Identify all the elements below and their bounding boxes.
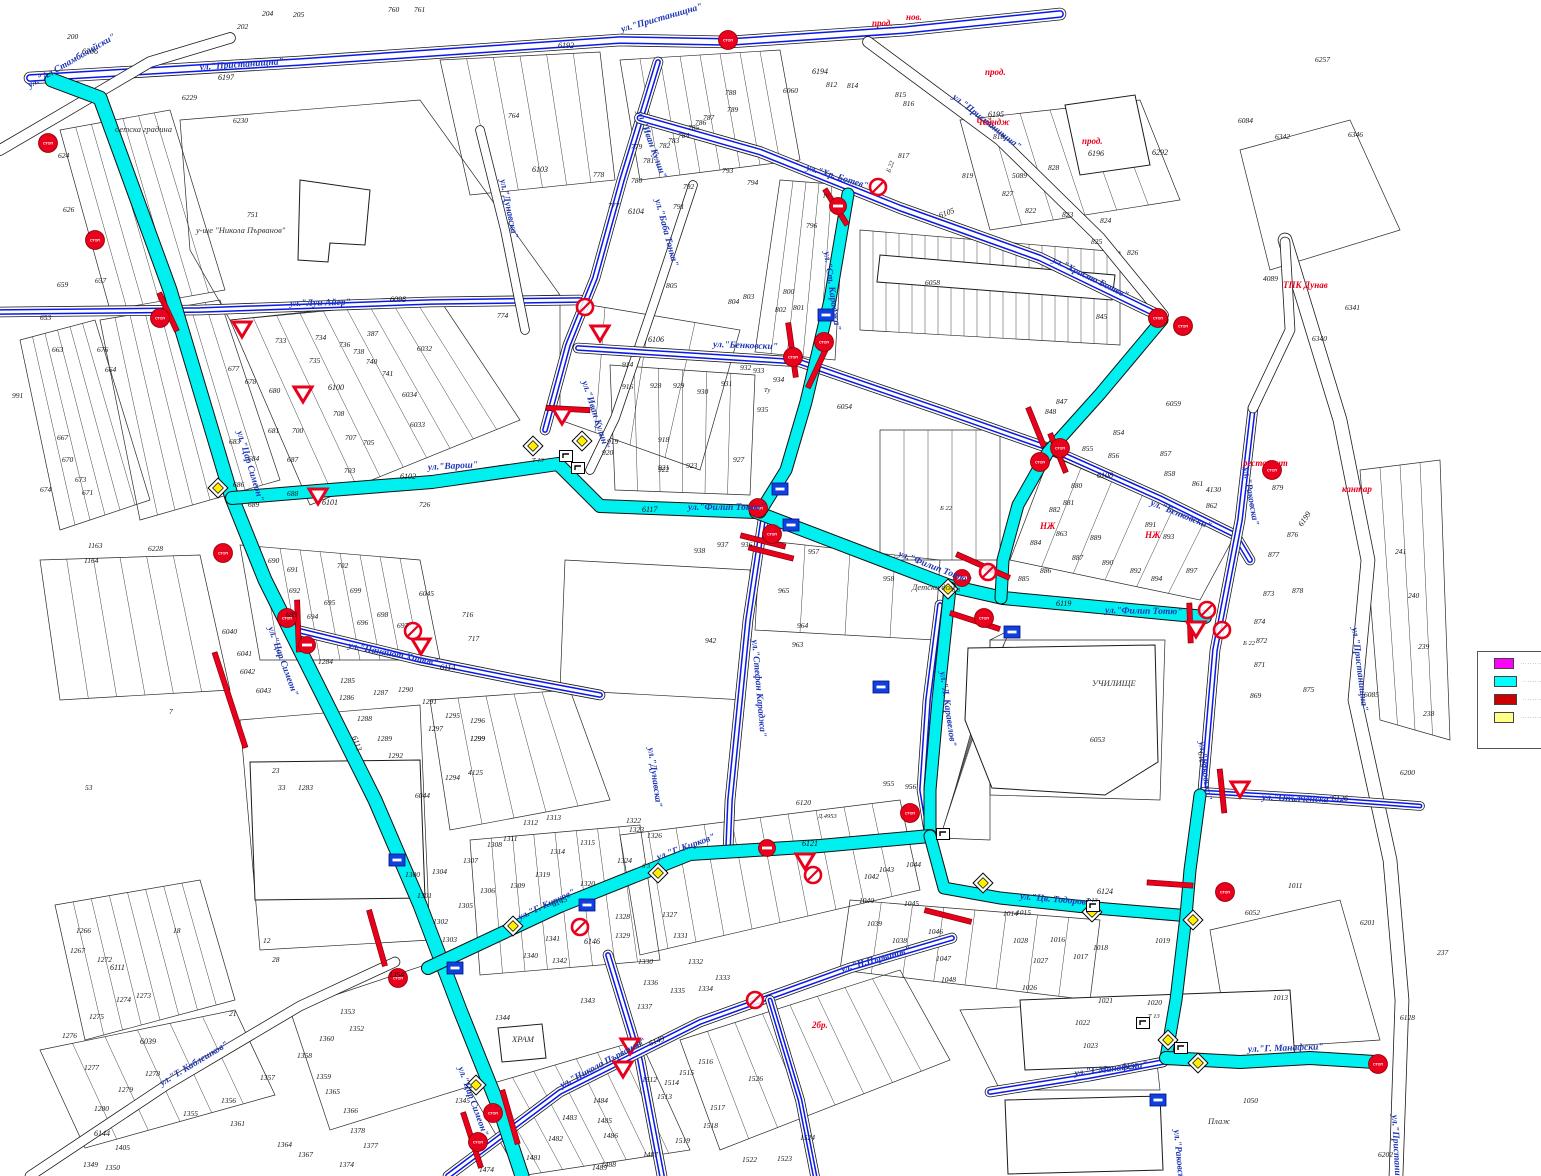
parcel-lot-line [732,821,752,929]
sign-code-label: б 3 [642,863,651,870]
parcel-number: 1377 [363,1141,378,1150]
yield-sign-marker [553,409,571,424]
parcel-number: 1163 [88,541,103,550]
legend-item-red-route: ........ [1494,692,1541,706]
parcel-number: 1026 [1022,983,1037,992]
parcel-number: 1374 [339,1160,354,1169]
parcel-number: 1523 [777,1154,792,1163]
parcel-number: 1350 [105,1163,120,1172]
parcel-number: 871 [1254,660,1265,669]
parcel-lot-line [253,318,333,496]
parcel-number: 751 [247,210,258,219]
parcel-number: 6060 [783,86,798,95]
parcel-number: 828 [1048,163,1060,172]
parcel-number: 1299 [470,734,485,743]
parcel-number: 936 [741,540,753,549]
street-code: 6196 [1088,149,1104,158]
parcel-number: 1297 [428,724,443,733]
parcel-number: 205 [293,10,305,19]
parcel-number: 700 [292,426,304,435]
svg-text:СТОП: СТОП [1220,890,1230,894]
parcel-number: 1513 [657,1092,672,1101]
street-code: 6124 [1097,887,1113,896]
parcel-number: 1302 [433,917,448,926]
sign-code-label: Б 22 [1242,640,1256,647]
parcel-number: 1481 [526,1153,541,1162]
parcel-number: 676 [97,345,109,354]
svg-text:СТОП: СТОП [1178,324,1188,328]
parcel-number: 12 [263,936,271,945]
annotation-red-label: НЖ [1144,530,1161,540]
svg-text:СТОП: СТОП [788,355,798,359]
parcel-number: 1013 [1273,993,1288,1002]
parcel-number: 1320 [580,879,595,888]
no-entry-open-marker [805,867,821,883]
stop-sign-marker: СТОП [1216,883,1235,902]
parcel-number: 1027 [1033,956,1048,965]
priority-road-sign [523,436,543,456]
parcel-number: 845 [1096,312,1108,321]
parcel-number: 1048 [941,975,956,984]
info-sign-blue [579,899,595,911]
parcel-number: 1342 [552,956,567,965]
street-code: 6111 [110,963,125,972]
parcel-number: 1273 [136,991,151,1000]
street-code: 6292 [1152,148,1168,157]
annotation-red-label: прод. [872,18,893,28]
parcel-number: 927 [733,455,745,464]
parcel-lot-line [619,827,638,962]
parcel-number: 18 [173,926,181,935]
parcel-lot-line [115,318,158,516]
stop-sign-marker: СТОП [39,134,58,153]
parcel-number: 6342 [1275,132,1290,141]
parcel-number: 955 [883,779,895,788]
parcel-number: 6059 [1166,399,1181,408]
sign-code-label: Д.4953 [817,813,838,820]
parcel-number: 4130 [1206,485,1221,494]
parcel-number: 6257 [1315,55,1330,64]
parcel-number: 1267 [70,946,85,955]
street-code: 6101 [322,498,338,507]
route-st-karadzha [760,194,848,512]
parcel-number: 6045 [419,589,434,598]
parcel-number: 204 [262,9,274,18]
parcel-number: 857 [1160,449,1172,458]
legend-label: ......... [1520,660,1541,666]
svg-text:СТОП: СТОП [1267,468,1277,472]
parcel-number: 1349 [83,1160,98,1169]
no-entry-sign-marker [759,840,776,857]
parcel-number: 780 [631,176,643,185]
parcel-number: 788 [725,88,737,97]
parcel-number: 1319 [535,870,550,879]
parcel-number: 863 [1056,529,1068,538]
parcel-lot-line [173,556,201,692]
street-code: 6114 [440,663,455,672]
parcel-number: 1283 [298,783,313,792]
parcel-number: 1352 [349,1024,364,1033]
parcel-number: 699 [350,586,362,595]
parcel-number: 1324 [617,856,632,865]
parcel-lot-line [845,550,850,635]
parcel-number: 738 [353,347,365,356]
parcel-number: 693 [286,610,298,619]
parcel-number: 991 [12,391,23,400]
parcel-number: 1327 [662,910,677,919]
arena-hall [250,760,425,900]
parcel-number: 6054 [837,402,852,411]
parcel-block [440,52,615,195]
parcel-number: 1357 [260,1073,275,1082]
street-code: 6117 [642,505,658,514]
parcel-lot-line [760,818,780,923]
parcel-number: 894 [1151,574,1163,583]
parcel-number: 1365 [325,1087,340,1096]
info-sign-blue [447,962,463,974]
legend-label: ......... [1520,714,1541,720]
parcel-block [40,555,230,700]
parcel-lot-line [493,57,518,190]
parcel-number: 687 [287,455,299,464]
parcel-number: 825 [1091,237,1103,246]
uchilishte-school [965,645,1158,795]
parcel-number: 764 [508,111,520,120]
parcel-number: 1306 [480,886,495,895]
parcel-number: 1334 [698,984,713,993]
parcel-number: 6042 [240,667,255,676]
parcel-number: 33 [277,783,286,792]
street-code: 6199 [1296,510,1313,528]
parcel-number: 1309 [510,881,525,890]
parcel-number: 937 [717,540,729,549]
parcel-lot-line [816,811,836,910]
parcel-block [560,560,750,700]
parcel-number: 887 [1072,553,1084,562]
parcel-number: 735 [309,356,321,365]
parcel-number: 879 [1272,483,1284,492]
parcel-number: 1301 [417,891,432,900]
parcel-lot-line [514,694,546,812]
parcel-number: 6340 [1312,334,1327,343]
legend-swatch-yellow-route [1494,712,1514,723]
parcel-number: 6230 [233,116,248,125]
parcel-lot-line [728,373,731,494]
svg-text:СТОП: СТОП [819,340,829,344]
parcel-number: 1289 [377,734,392,743]
parcel-number: 1305 [458,901,473,910]
no-entry-open-marker [1214,622,1230,638]
svg-text:СТОП: СТОП [218,551,228,555]
parcel-number: 670 [62,455,74,464]
parcel-number: 930 [697,387,709,396]
stop-sign-marker: СТОП [901,804,920,823]
parcel-number: 1484 [593,1096,608,1105]
parcel-number: 880 [1071,481,1083,490]
street-code: 6039 [140,1037,156,1046]
parcel-number: 858 [1164,469,1176,478]
annotation-red-label: 2бр. [811,1020,828,1030]
parcel-lot-line [83,323,136,505]
parcel-number: 6040 [222,627,237,636]
parcel-number: 1280 [94,1104,109,1113]
yield-sign-marker [591,326,609,341]
parcel-lot-line [844,807,864,903]
parcel-number: 923 [686,461,698,470]
parcel-number: 891 [1145,520,1156,529]
parcel-number: 1050 [1243,1096,1258,1105]
parcel-number: 816 [903,99,915,108]
parcel-lot-line [547,55,567,185]
sign-code-label: Т 13 [532,457,544,464]
parcel-number: 855 [1082,444,1094,453]
street-name-label: ул."Филип Тотю" [687,503,765,513]
street-code: 6144 [94,1129,110,1138]
info-sign-blue [1004,626,1020,638]
parcel-number: 875 [1303,685,1315,694]
parcel-number: 1294 [445,773,460,782]
parcel-number: 667 [57,433,69,442]
parcel-number: 787 [703,113,715,122]
parcel-number: 6229 [182,93,197,102]
parcel-number: 874 [1254,617,1266,626]
parcel-number: 1022 [1075,1018,1090,1027]
parcel-number: 1524 [800,1133,815,1142]
parcel-number: 686 [233,480,245,489]
parcel-number: 1489 [592,1163,607,1172]
parcel-number: 1276 [62,1031,77,1040]
parcel-number: 889 [1090,533,1102,542]
street-code: 6100 [328,383,344,392]
street-code: 6106 [648,335,664,344]
parcel-number: 238 [1423,709,1435,718]
parcel-number: 942 [705,636,717,645]
parcel-number: 653 [40,313,52,322]
parcel-number: 824 [1100,216,1112,225]
parcel-number: 1019 [1155,936,1170,945]
barrier-bar-marker [367,909,388,966]
street-code: 6146 [584,937,600,946]
svg-text:СТОП: СТОП [488,1111,498,1115]
parcel-number: 1356 [221,1096,236,1105]
stop-sign-marker: СТОП [784,348,803,367]
parcel-number: 1518 [703,1121,718,1130]
parcel-number: 6228 [148,544,163,553]
parcel-number: 789 [727,105,739,114]
street-code: 6105 [938,206,956,220]
street-name-label: ул."Бенковски" [712,340,778,352]
parcel-number: 6032 [417,344,432,353]
svg-text:СТОП: СТОП [473,1140,483,1144]
parcel-number: 956 [905,782,917,791]
parcel-lot-line [380,557,400,660]
parcel-number: 791 [673,202,684,211]
parcel-number: 774 [497,311,509,320]
parcel-number: 6034 [402,390,417,399]
traffic-sign-box [560,451,573,462]
no-entry-open-marker [870,179,886,195]
map-canvas[interactable]: СТОПСТОПСТОПСТОПСТОПСТОПСТОПСТОПСТОПСТОП… [0,0,1541,1176]
parcel-lot-line [486,696,514,818]
parcel-number: 1526 [748,1074,763,1083]
sign-code-label: Б 22 [885,159,896,174]
parcel-number: 1042 [864,872,879,881]
parcel-number: 805 [666,281,678,290]
parcel-number: 933 [753,366,765,375]
parcel-number: 1047 [936,954,951,963]
parcel-number: 1043 [879,865,894,874]
parcel-number: 6084 [1238,116,1253,125]
parcel-number: 1335 [670,986,685,995]
parcel-lot-line [573,53,591,182]
parcel-number: 963 [792,640,804,649]
parcel-block [880,430,1000,560]
parcel-number: 1322 [626,816,641,825]
parcel-number: 1274 [116,995,131,1004]
parcel-number: 6128 [1400,1013,1415,1022]
parcel-number: 674 [40,485,52,494]
poi-label: Детски дом [911,582,956,592]
sign-code-label: Ту [764,387,770,394]
annotation-red-label: Чейндж [976,117,1010,127]
sign-code-label: IV [822,193,830,200]
parcel-number: 1360 [319,1034,334,1043]
parcel-number: 878 [1292,586,1304,595]
map-viewport: СТОПСТОПСТОПСТОПСТОПСТОПСТОПСТОПСТОПСТОП… [0,0,1541,1176]
parcel-number: 890 [1102,558,1114,567]
parcel-number: 1040 [859,896,874,905]
parcel-block [55,880,235,1040]
stop-sign-marker: СТОП [1149,309,1168,328]
parcel-number: 695 [324,598,336,607]
parcel-number: 778 [593,170,605,179]
parcel-number: 1516 [698,1057,713,1066]
parcel-number: 861 [1192,479,1203,488]
parcel-number: 1358 [297,1051,312,1060]
poi-label: УЧИЛИЩЕ [1092,678,1136,688]
parcel-number: 1290 [398,685,413,694]
parcel-number: 4089 [1263,274,1278,283]
parcel-number: 760 [388,5,400,14]
poi-label: детска градина [115,124,172,134]
parcel-number: 6058 [925,278,940,287]
parcel-number: 1046 [928,927,943,936]
parcel-number: 691 [287,565,298,574]
sign-code-label: Т 13 [1148,1013,1160,1020]
parcel-number: 681 [268,426,279,435]
parcel-number: 6041 [237,649,252,658]
parcel-lot-line [760,51,780,162]
parcel-number: 885 [1018,574,1030,583]
parcel-number: 935 [757,405,769,414]
parcel-number: 803 [743,292,755,301]
parcel-number: 717 [468,634,480,643]
parcel-number: 1286 [339,693,354,702]
parcel-number: 1021 [1098,996,1113,1005]
svg-text:СТОП: СТОП [43,141,53,145]
parcel-lot-line [1059,918,1069,997]
parcel-number: 1344 [495,1013,510,1022]
annotation-red-label: прод. [985,67,1006,77]
parcel-number: 240 [1408,591,1420,600]
parcel-number: 7 [169,707,173,716]
parcel-number: 741 [382,369,393,378]
street-name-label: ул."Дунавска" [645,746,663,808]
parcel-number: 690 [268,556,280,565]
parcel-number: 5089 [1012,171,1027,180]
stop-sign-marker: СТОП [484,1104,503,1123]
map-legend: .................................. [1477,651,1541,749]
info-sign-blue [783,519,799,531]
parcel-number: 819 [962,171,974,180]
parcel-number: 761 [414,5,425,14]
parcel-number: 387 [366,329,379,338]
parcel-number: 6052 [1245,908,1260,917]
parcel-number: 1164 [84,556,99,565]
parcel-lot-line [845,988,893,1083]
parcel-number: 1308 [487,840,502,849]
parcel-number: 1287 [373,688,388,697]
parcel-number: 200 [67,32,79,41]
road-ul-benkovski-e [1048,448,1250,560]
parcel-number: 726 [419,500,431,509]
parcel-number: 847 [1056,397,1068,406]
annotation-red-label: кантар [1342,484,1372,494]
parcel-number: 6201 [1360,918,1375,927]
parcel-number: 777 [608,201,620,210]
parcel-number: 736 [339,340,351,349]
parcel-number: 794 [747,178,759,187]
parcel-number: 1340 [523,951,538,960]
parcel-lot-line [680,56,700,172]
parcel-lot-line [660,58,680,176]
parcel-number: 1277 [84,1063,99,1072]
no-entry-open-marker [572,919,588,935]
parcel-number: 708 [333,409,345,418]
street-name-label: ул."Пристанищна" [619,2,704,35]
stop-sign-marker: СТОП [151,309,170,328]
street-name-label: ул."Никола Първанов" [558,1037,648,1091]
stop-sign-marker: СТОП [719,31,738,50]
parcel-number: 6053 [1090,735,1105,744]
parcel-number: 53 [85,783,93,792]
parcel-number: 1332 [688,957,703,966]
parcel-number: 1304 [432,867,447,876]
parcel-number: 1016 [1050,935,1065,944]
legend-swatch-cyan-route [1494,676,1517,687]
parcel-block [840,900,1100,1000]
info-sign-blue [389,854,405,866]
parcel-lot-line [147,557,174,694]
yield-sign-marker [294,387,312,402]
parcel-number: 241 [1395,547,1406,556]
parcel-number: 1519 [675,1136,690,1145]
parcel-number: 892 [1130,566,1142,575]
parcel-number: 793 [722,166,734,175]
parcel-number: 856 [1108,451,1120,460]
no-entry-open-marker [747,992,763,1008]
annotation-red-label: ТПК Дунав [1283,280,1328,290]
parcel-number: 6044 [415,791,430,800]
svg-text:СТОП: СТОП [90,238,100,242]
parcel-lot-line [872,804,892,897]
street-code: 6197 [218,73,235,82]
parcel-number: 1359 [316,1072,331,1081]
street-code: 6104 [628,207,644,216]
annotation-red-label: прод. [1082,136,1103,146]
parcel-number: 801 [793,303,804,312]
sign-code-label: Б 22 [939,505,953,512]
